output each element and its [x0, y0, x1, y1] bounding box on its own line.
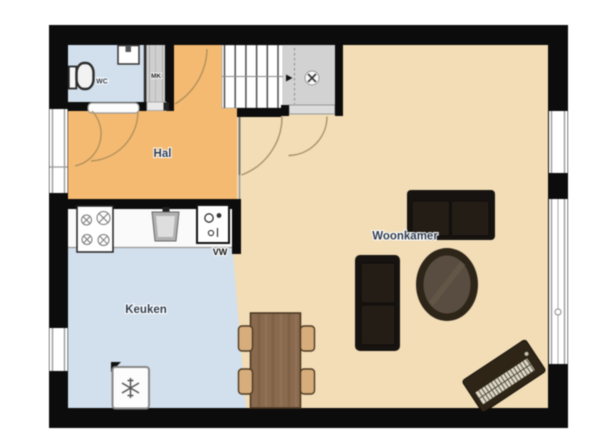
svg-text:WC: WC [96, 79, 108, 86]
svg-text:Keuken: Keuken [125, 304, 167, 316]
svg-text:Hal: Hal [154, 148, 172, 160]
svg-text:VW: VW [213, 247, 228, 257]
svg-text:Woonkamer: Woonkamer [372, 231, 438, 243]
svg-text:MK: MK [151, 73, 161, 80]
